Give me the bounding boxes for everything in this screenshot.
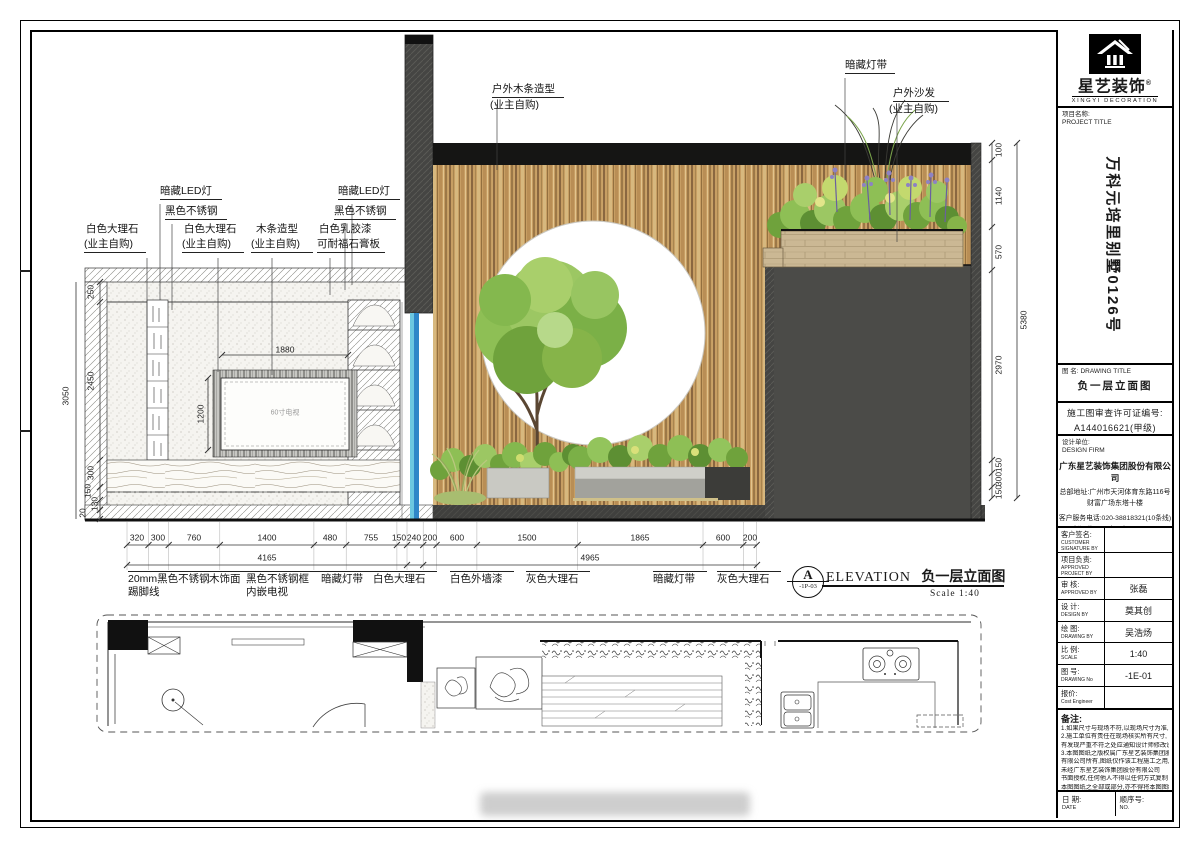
fold-mark — [20, 270, 30, 272]
company-logo-icon — [1089, 34, 1141, 74]
annotation-d: 200 — [743, 534, 757, 543]
annotation-dr: 3050 — [62, 387, 71, 406]
project-label: 项目名称:PROJECT TITLE — [1058, 108, 1172, 127]
elevation-title-en: ELEVATION — [826, 570, 911, 585]
titleblock-row-value: 莫其创 — [1105, 600, 1172, 621]
annotation-c: (业主自购) — [84, 239, 146, 253]
firm-name: 广东星艺装饰集团股份有限公司 — [1058, 460, 1172, 484]
date-section: 日 期:DATE 顺序号:NO. — [1058, 792, 1172, 816]
note-line: 2.施工单位有责任在现场核实所有尺寸, — [1061, 733, 1169, 741]
brand-name-en: XINGYI DECORATION — [1072, 96, 1159, 104]
titleblock-row: 图 号:DRAWING No-1E-01 — [1058, 665, 1172, 687]
titleblock-row-value: -1E-01 — [1105, 665, 1172, 686]
annotation-c: 白色大理石 — [184, 224, 237, 235]
annotation-c: (业主自购) — [490, 100, 539, 111]
annotation-c: 踢脚线 — [128, 587, 160, 598]
annotation-dr: 250 — [87, 285, 96, 299]
annotation-c: 户外木条造型 — [492, 84, 564, 98]
titleblock-row: 项目负责:APPROVED PROJECT BY — [1058, 553, 1172, 578]
project-name: 万科元培里别墅0126号 — [1106, 126, 1124, 364]
annotation-d: 755 — [364, 534, 378, 543]
annotation-m: 灰色大理石 — [526, 571, 590, 585]
annotation-c: 黑色不锈钢 — [165, 206, 227, 220]
note-line: 未经广东星艺装饰集团股份有限公司 — [1061, 767, 1169, 775]
elevation-title: ELEVATION 负一层立面图 — [826, 566, 1005, 586]
titleblock-row-value — [1105, 528, 1172, 552]
annotation-m: 白色外墙漆 — [450, 571, 514, 585]
annotation-d: 1865 — [631, 534, 650, 543]
annotation-c: 白色乳胶漆 — [319, 224, 372, 235]
titleblock-row-value: 吴浩炀 — [1105, 622, 1172, 643]
annotation-c: 户外沙发 — [893, 88, 949, 102]
titleblock-row: 客户签名:CUSTOMER SIGNATURE BY — [1058, 528, 1172, 553]
firm-address: 总部地址:广州市天河体育东路116号财富广场东塔十楼 — [1058, 488, 1172, 509]
annotation-d: 1400 — [258, 534, 277, 543]
annotation-tv: 60寸电视 — [271, 409, 300, 416]
note-line: 有发现严重不符之处应通知设计师修改设计 — [1061, 742, 1169, 750]
annotation-dr: 100 — [995, 143, 1004, 157]
annotation-m: 暗藏灯带 — [321, 571, 375, 585]
notes-label: 备注: — [1061, 712, 1169, 725]
elevation-title-underline — [822, 585, 1004, 587]
title-block: 星艺装饰® XINGYI DECORATION 项目名称:PROJECT TIT… — [1056, 30, 1172, 818]
annotation-c: 暗藏灯带 — [845, 60, 895, 74]
annotation-c: 暗藏LED灯 — [338, 186, 400, 200]
titleblock-row-value — [1105, 687, 1172, 708]
note-line: 本图图纸之全部或部分,亦不得将本图图纸 — [1061, 784, 1169, 792]
floor-plan-strip — [95, 612, 990, 742]
firm-label: 设计单位:DESIGN FIRM — [1058, 436, 1172, 455]
annotation-c: 内嵌电视 — [246, 587, 288, 598]
annotation-dr: 150 — [995, 485, 1004, 499]
annotation-dr: 570 — [995, 245, 1004, 259]
annotation-dr: 130 — [91, 497, 100, 511]
annotation-d: 300 — [151, 534, 165, 543]
annotation-c: 白色大理石 — [86, 224, 139, 235]
annotation-dr: 1200 — [197, 405, 206, 424]
firm-phone: 客户服务电话:020-38818321(10条线) — [1058, 512, 1172, 522]
annotation-m: 灰色大理石 — [717, 571, 781, 585]
elevation-marker-letter: A — [793, 568, 823, 581]
annotation-m: 木饰面 — [209, 571, 251, 585]
design-firm-section: 设计单位:DESIGN FIRM 广东星艺装饰集团股份有限公司 总部地址:广州市… — [1058, 436, 1172, 528]
brand-name: 星艺装饰® — [1058, 75, 1172, 95]
sequence-cell: 顺序号:NO. — [1115, 792, 1173, 816]
titleblock-row: 审 核:APPROVED BY张磊 — [1058, 578, 1172, 600]
annotation-d: 150 — [392, 534, 406, 543]
drawing-sheet: 户外木条造型(业主自购)暗藏灯带户外沙发(业主自购)暗藏LED灯黑色不锈钢白色大… — [0, 0, 1200, 848]
annotation-dr: 150 — [995, 458, 1004, 472]
annotation-dr: 20 — [79, 508, 88, 517]
fold-mark — [20, 430, 30, 432]
annotation-dr: 2970 — [995, 356, 1004, 375]
annotation-d: 760 — [187, 534, 201, 543]
permit-label: 施工图审查许可证编号: — [1058, 406, 1172, 419]
annotation-c: 可耐福石膏板 — [317, 239, 385, 253]
annotation-d: 240 — [407, 534, 421, 543]
titleblock-row: 比 例:SCALE1:40 — [1058, 643, 1172, 665]
titleblock-row: 报价:Cost Engineer — [1058, 687, 1172, 708]
drawing-title-label: 图 名: DRAWING TITLE — [1058, 365, 1172, 376]
annotation-d: 480 — [323, 534, 337, 543]
signature-rows: 客户签名:CUSTOMER SIGNATURE BY项目负责:APPROVED … — [1058, 528, 1172, 710]
annotation-d: 1500 — [518, 534, 537, 543]
drawing-title-section: 图 名: DRAWING TITLE 负一层立面图 — [1058, 365, 1172, 403]
note-line: 3.本图图纸之版权属广东星艺装饰集团股份 — [1061, 750, 1169, 758]
titleblock-row: 绘 图:DRAWING BY吴浩炀 — [1058, 622, 1172, 644]
annotation-dr: 5380 — [1020, 311, 1029, 330]
note-line: 有限公司所有,图纸仅作该工程施工之用, — [1061, 758, 1169, 766]
drawing-title: 负一层立面图 — [1058, 378, 1172, 393]
annotation-dr: 1140 — [995, 187, 1004, 205]
date-cell: 日 期:DATE — [1058, 792, 1115, 816]
annotation-c: 木条造型 — [256, 224, 298, 235]
annotation-d: 320 — [130, 534, 144, 543]
elevation-marker: A -1P-03 — [792, 566, 824, 598]
elevation-scale: Scale 1:40 — [930, 589, 980, 599]
watermark — [480, 792, 750, 816]
titleblock-row-value: 1:40 — [1105, 643, 1172, 664]
annotation-c: 暗藏LED灯 — [160, 186, 222, 200]
registered-mark: ® — [1146, 80, 1152, 87]
annotation-m: 黑色不锈钢框 — [246, 571, 324, 585]
titleblock-row-value: 张磊 — [1105, 578, 1172, 599]
annotation-c: (业主自购) — [182, 239, 244, 253]
note-line: 书面授权,任何他人不得以任何方式复制 — [1061, 775, 1169, 783]
annotation-d: 600 — [450, 534, 464, 543]
annotation-d: 4965 — [581, 554, 600, 563]
elevation-marker-ref: -1P-03 — [793, 582, 823, 591]
annotation-d: 200 — [423, 534, 437, 543]
note-line: 1.如果尺寸与现场不符,以现场尺寸为准, — [1061, 725, 1169, 733]
annotation-dr: 300 — [87, 466, 96, 480]
permit-section: 施工图审查许可证编号: A144016621(甲级) — [1058, 403, 1172, 436]
annotation-m: 暗藏灯带 — [653, 571, 707, 585]
annotation-d: 1880 — [276, 346, 295, 355]
annotation-m: 白色大理石 — [373, 571, 437, 585]
project-section: 项目名称:PROJECT TITLE 万科元培里别墅0126号 — [1058, 108, 1172, 365]
notes-lines: 1.如果尺寸与现场不符,以现场尺寸为准,2.施工单位有责任在现场核实所有尺寸,有… — [1061, 725, 1169, 792]
annotation-dr: 2450 — [87, 372, 96, 391]
logo-section: 星艺装饰® XINGYI DECORATION — [1058, 30, 1172, 108]
elevation-title-cn: 负一层立面图 — [921, 568, 1005, 584]
titleblock-row: 设 计:DESIGN BY莫其创 — [1058, 600, 1172, 622]
annotation-c: (业主自购) — [889, 104, 938, 115]
annotation-d: 600 — [716, 534, 730, 543]
annotation-d: 4165 — [258, 554, 277, 563]
notes-section: 备注: 1.如果尺寸与现场不符,以现场尺寸为准,2.施工单位有责任在现场核实所有… — [1058, 710, 1172, 792]
annotation-c: (业主自购) — [251, 239, 313, 253]
titleblock-row-value — [1105, 553, 1172, 577]
permit-number: A144016621(甲级) — [1058, 421, 1172, 434]
annotation-c: 黑色不锈钢 — [334, 206, 396, 220]
